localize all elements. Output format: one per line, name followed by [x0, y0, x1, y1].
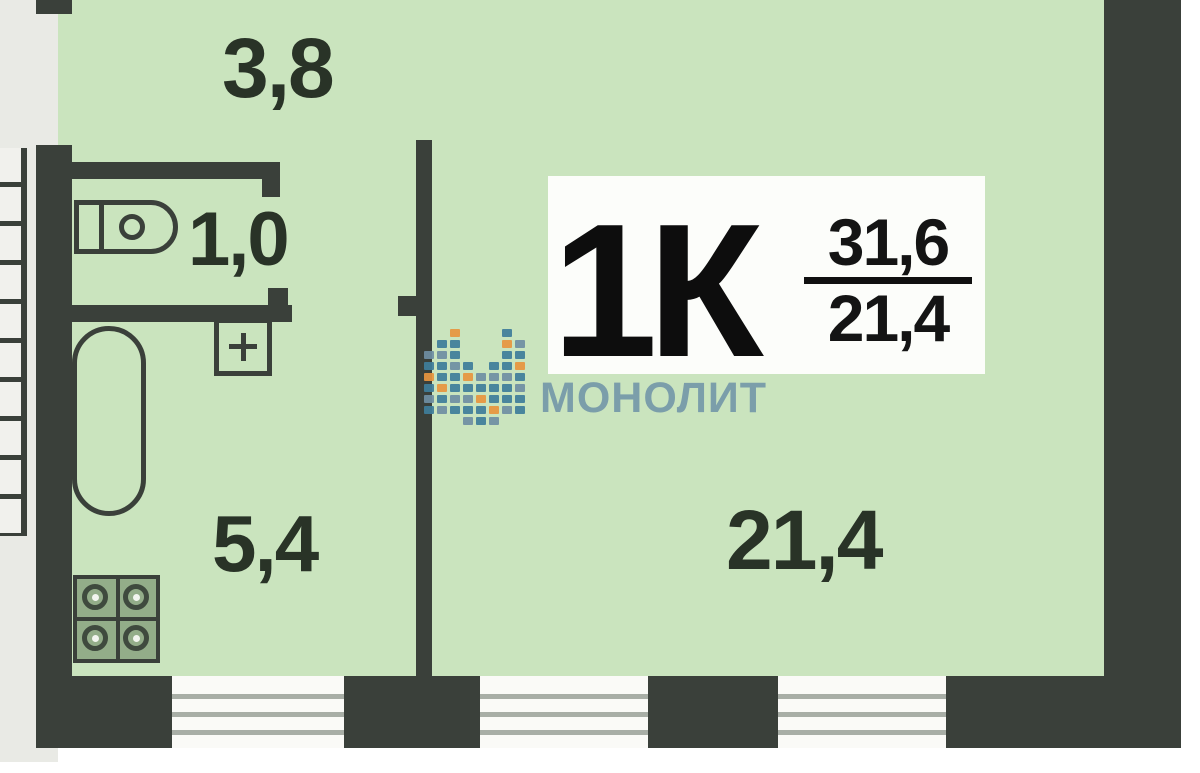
- stove-burner: [82, 584, 108, 610]
- wall-right: [1104, 0, 1181, 748]
- stove-burner: [123, 584, 149, 610]
- bathtub-icon: [72, 326, 146, 516]
- wall-wc-door-jamb: [262, 179, 280, 197]
- toilet-cistern-divider: [99, 205, 104, 249]
- window-2: [480, 676, 648, 748]
- room-label-kitchen-bathroom: 5,4: [212, 504, 317, 584]
- room-label-wc: 1,0: [188, 202, 288, 278]
- stove-burner: [123, 625, 149, 651]
- wall-bottom-segment-2: [344, 676, 480, 748]
- total-area: 31,6: [804, 210, 972, 274]
- area-fraction: 31,6 21,4: [804, 210, 972, 350]
- living-area: 21,4: [804, 286, 972, 350]
- apartment-info-box: 1К 31,6 21,4: [548, 176, 985, 374]
- window-3: [778, 676, 946, 748]
- wall-top-stub: [36, 0, 72, 14]
- toilet-icon: [74, 200, 178, 254]
- toilet-bowl-circle: [119, 214, 145, 240]
- watermark-brand-text: МОНОЛИТ: [540, 377, 767, 420]
- wall-bottom-segment-1: [36, 676, 172, 748]
- wall-left: [36, 145, 72, 748]
- stove-burner: [82, 625, 108, 651]
- floor-plan: 3,8 1,0 5,4 21,4 1К 31,6 21,4 МОНОЛИТ: [0, 0, 1200, 773]
- window-1: [172, 676, 344, 748]
- wall-bottom-segment-4: [946, 676, 1181, 748]
- stove-icon: [73, 575, 160, 663]
- wall-door-nub: [398, 296, 416, 316]
- stairs-icon: [0, 148, 27, 536]
- room-label-living-room: 21,4: [726, 498, 882, 582]
- sink-icon: [214, 318, 272, 376]
- wall-divider-jamb: [268, 288, 288, 305]
- wall-wc-top: [72, 162, 280, 179]
- apartment-type-label: 1К: [552, 216, 754, 366]
- wall-bottom-segment-3: [648, 676, 778, 748]
- monolit-logo-icon: [424, 329, 530, 431]
- room-label-hallway: 3,8: [222, 26, 333, 110]
